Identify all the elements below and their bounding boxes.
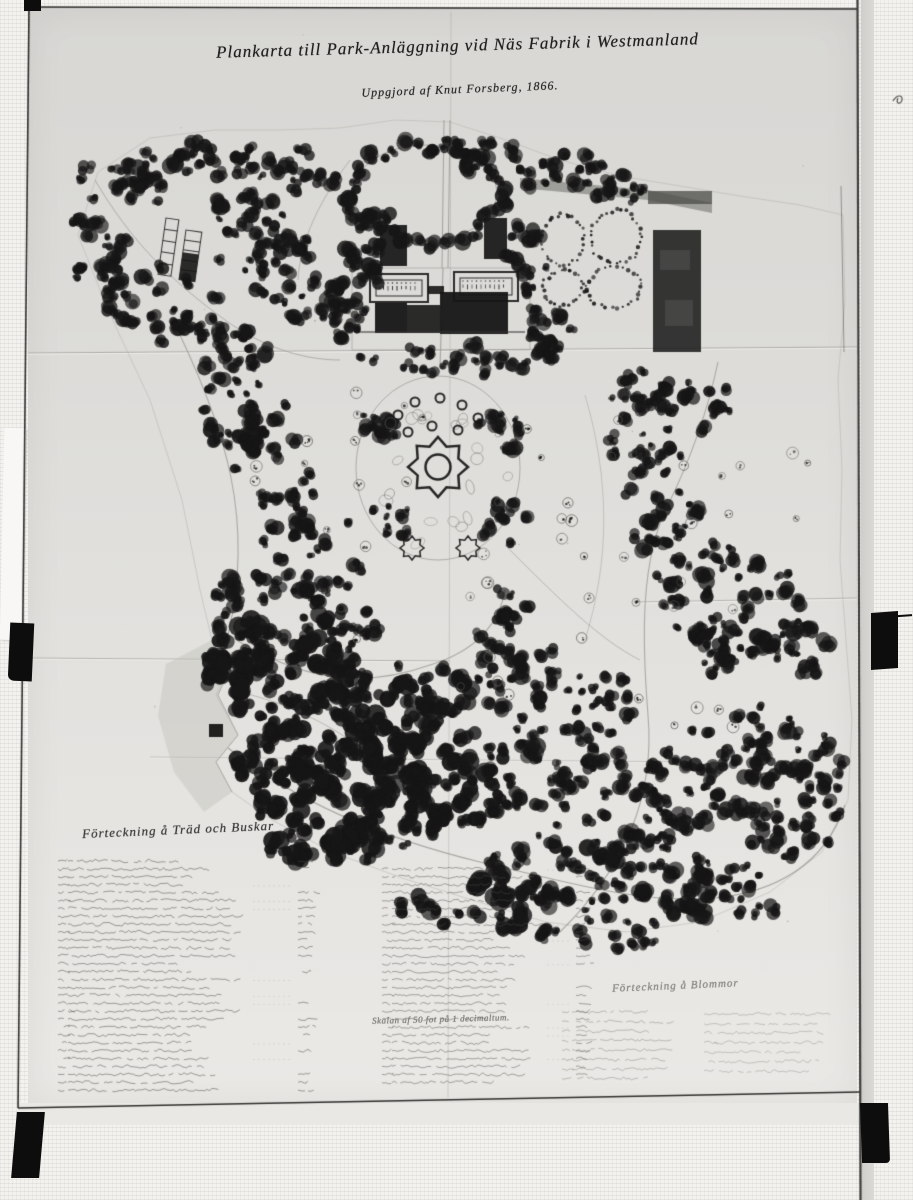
tape-piece-right — [871, 611, 898, 670]
photograph-of-park-plan: Plankarta till Park-Anläggning vid Näs F… — [0, 0, 913, 1200]
tape-piece-bottom-right — [860, 1103, 890, 1163]
tape-piece-left — [8, 623, 35, 682]
tape-piece-bottom-left — [11, 1112, 45, 1178]
tape-piece-top-left — [24, 0, 41, 11]
